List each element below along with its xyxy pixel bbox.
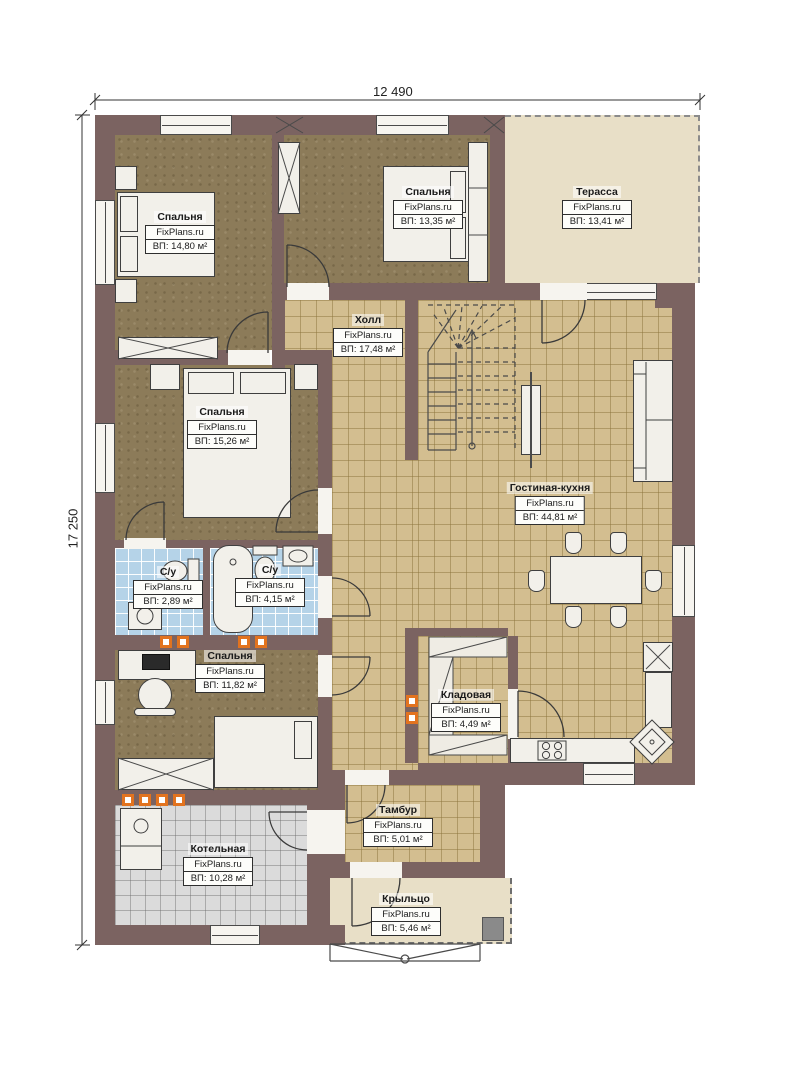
dimension-height: 17 250 xyxy=(65,506,80,552)
room-info-box: FixPlans.ru ВП: 11,82 м² xyxy=(195,664,265,693)
room-info-box: FixPlans.ru ВП: 13,41 м² xyxy=(562,200,632,229)
room-name: Терасса xyxy=(573,186,621,198)
wall-storage-top xyxy=(418,628,508,636)
room-info-box: FixPlans.ru ВП: 14,80 м² xyxy=(145,225,215,254)
window-bedroom3-left xyxy=(95,423,115,493)
wall-bath-divider xyxy=(203,548,210,635)
room-info-box: FixPlans.ru ВП: 4,15 м² xyxy=(235,578,305,607)
room-name: Спальня xyxy=(154,211,205,223)
window-living-right xyxy=(672,545,695,617)
room-label-hall: Холл FixPlans.ru ВП: 17,48 м² xyxy=(333,314,403,357)
watermark: FixPlans.ru xyxy=(184,858,252,871)
room-area: ВП: 11,82 м² xyxy=(196,678,264,692)
window-bedroom4-left xyxy=(95,680,115,725)
room-area: ВП: 15,26 м² xyxy=(188,434,256,448)
dining-chair xyxy=(565,532,582,554)
window-bedroom1-left xyxy=(95,200,115,285)
kitchen-counter-bottom xyxy=(510,738,635,763)
window-bedroom2-top xyxy=(376,115,449,135)
dining-chair xyxy=(610,606,627,628)
window-boiler-bottom xyxy=(210,925,260,945)
wall-terrace-left xyxy=(490,115,505,283)
room-info-box: FixPlans.ru ВП: 4,49 м² xyxy=(431,703,501,732)
floor-plan-page: { "meta": { "watermark": "FixPlans.ru" }… xyxy=(0,0,792,1080)
room-area: ВП: 44,81 м² xyxy=(516,510,584,524)
window-bedroom1-top xyxy=(160,115,232,135)
boiler-unit xyxy=(120,808,162,870)
dining-table xyxy=(550,556,642,604)
window-living-terrace xyxy=(585,283,657,300)
room-name: Котельная xyxy=(188,843,249,855)
room-info-box: FixPlans.ru ВП: 13,35 м² xyxy=(393,200,463,229)
vent-marker xyxy=(406,695,418,707)
dining-chair xyxy=(645,570,662,592)
room-label-bedroom4: Спальня FixPlans.ru ВП: 11,82 м² xyxy=(195,650,265,693)
door-opening-boiler xyxy=(307,810,345,854)
door-opening-bedroom3 xyxy=(318,488,332,534)
room-label-terrace: Терасса FixPlans.ru ВП: 13,41 м² xyxy=(562,186,632,229)
watermark: FixPlans.ru xyxy=(196,665,264,678)
room-area: ВП: 13,35 м² xyxy=(394,214,462,228)
wall-bed1-bottom-2 xyxy=(272,350,332,365)
room-name: Гостиная-кухня xyxy=(507,482,593,494)
wall-living-right-corner xyxy=(655,283,695,308)
door-opening-bedroom4 xyxy=(318,655,332,697)
room-label-bedroom3: Спальня FixPlans.ru ВП: 15,26 м² xyxy=(187,406,257,449)
door-opening-storage xyxy=(508,689,518,739)
room-label-bedroom1: Спальня FixPlans.ru ВП: 14,80 м² xyxy=(145,211,215,254)
dining-chair xyxy=(610,532,627,554)
nightstand xyxy=(150,364,180,390)
wall-living-right xyxy=(672,283,695,763)
watermark: FixPlans.ru xyxy=(432,704,500,717)
dimension-width: 12 490 xyxy=(370,84,416,99)
room-label-living: Гостиная-кухня FixPlans.ru ВП: 44,81 м² xyxy=(507,482,593,525)
room-label-porch: Крыльцо FixPlans.ru ВП: 5,46 м² xyxy=(371,893,441,936)
vent-marker xyxy=(122,794,134,806)
room-label-vestibule: Тамбур FixPlans.ru ВП: 5,01 м² xyxy=(363,804,433,847)
watermark: FixPlans.ru xyxy=(188,421,256,434)
room-name: Холл xyxy=(352,314,384,326)
room-info-box: FixPlans.ru ВП: 10,28 м² xyxy=(183,857,253,886)
pillow xyxy=(294,721,312,759)
room-name: Тамбур xyxy=(376,804,420,816)
vent-marker xyxy=(177,636,189,648)
room-info-box: FixPlans.ru ВП: 5,01 м² xyxy=(363,818,433,847)
kitchen-counter-right xyxy=(645,672,672,728)
room-label-bath2: С/у FixPlans.ru ВП: 4,15 м² xyxy=(235,564,305,607)
pillow xyxy=(188,372,234,394)
sofa xyxy=(633,360,673,482)
shelving-bedroom2 xyxy=(468,142,488,282)
room-info-box: FixPlans.ru ВП: 5,46 м² xyxy=(371,907,441,936)
room-label-boiler: Котельная FixPlans.ru ВП: 10,28 м² xyxy=(183,843,253,886)
door-opening-bedroom1 xyxy=(228,350,270,365)
door-opening-bath2 xyxy=(318,576,332,618)
porch-steps xyxy=(330,944,480,963)
wardrobe-bedroom1 xyxy=(118,337,218,359)
printer xyxy=(142,654,170,670)
room-info-box: FixPlans.ru ВП: 44,81 м² xyxy=(515,496,585,525)
room-area: ВП: 5,46 м² xyxy=(372,921,440,935)
room-info-box: FixPlans.ru ВП: 15,26 м² xyxy=(187,420,257,449)
wall-vestibule-right xyxy=(480,785,505,862)
room-label-bath1: С/у FixPlans.ru ВП: 2,89 м² xyxy=(133,566,203,609)
stair-pilaster xyxy=(521,385,541,455)
room-label-bedroom2: Спальня FixPlans.ru ВП: 13,35 м² xyxy=(393,186,463,229)
room-name: Спальня xyxy=(196,406,247,418)
watermark: FixPlans.ru xyxy=(563,201,631,214)
wall-bath-bottom xyxy=(115,635,318,650)
room-area: ВП: 4,49 м² xyxy=(432,717,500,731)
pillow xyxy=(120,196,138,232)
room-name: С/у xyxy=(259,564,281,576)
porch-shaft xyxy=(482,917,504,941)
watermark: FixPlans.ru xyxy=(236,579,304,592)
room-info-box: FixPlans.ru ВП: 2,89 м² xyxy=(133,580,203,609)
watermark: FixPlans.ru xyxy=(134,581,202,594)
room-name: Спальня xyxy=(204,650,255,662)
pillow xyxy=(120,236,138,272)
vent-marker xyxy=(238,636,250,648)
door-opening-bath1 xyxy=(124,538,166,549)
room-name: С/у xyxy=(157,566,179,578)
room-area: ВП: 2,89 м² xyxy=(134,594,202,608)
pillow xyxy=(240,372,286,394)
nightstand xyxy=(294,364,318,390)
vent-marker xyxy=(156,794,168,806)
dining-chair xyxy=(528,570,545,592)
watermark: FixPlans.ru xyxy=(146,226,214,239)
room-name: Спальня xyxy=(402,186,453,198)
window-living-bottom xyxy=(583,763,635,785)
door-opening-terrace xyxy=(540,283,587,300)
room-name: Крыльцо xyxy=(379,893,433,905)
vent-marker xyxy=(406,712,418,724)
room-area: ВП: 14,80 м² xyxy=(146,239,214,253)
watermark: FixPlans.ru xyxy=(334,329,402,342)
room-label-storage: Кладовая FixPlans.ru ВП: 4,49 м² xyxy=(431,689,501,732)
room-info-box: FixPlans.ru ВП: 17,48 м² xyxy=(333,328,403,357)
watermark: FixPlans.ru xyxy=(364,819,432,832)
room-area: ВП: 13,41 м² xyxy=(563,214,631,228)
wardrobe-bedroom2 xyxy=(278,142,300,214)
kitchen-cabinet xyxy=(643,642,673,672)
room-area: ВП: 4,15 м² xyxy=(236,592,304,606)
vent-marker xyxy=(160,636,172,648)
door-opening-vestibule-hall xyxy=(345,770,389,785)
desk-chair xyxy=(138,678,172,712)
wardrobe-bedroom4 xyxy=(118,758,214,790)
room-area: ВП: 5,01 м² xyxy=(364,832,432,846)
watermark: FixPlans.ru xyxy=(372,908,440,921)
vent-marker xyxy=(255,636,267,648)
door-opening-bedroom2 xyxy=(287,283,329,300)
nightstand xyxy=(115,166,137,190)
desk-chair-back xyxy=(134,708,176,716)
nightstand xyxy=(115,279,137,303)
wall-hall-living xyxy=(405,300,418,460)
room-area: ВП: 17,48 м² xyxy=(334,342,402,356)
door-opening-entrance xyxy=(350,862,402,878)
vent-marker xyxy=(139,794,151,806)
dining-chair xyxy=(565,606,582,628)
room-name: Кладовая xyxy=(438,689,494,701)
watermark: FixPlans.ru xyxy=(394,201,462,214)
room-area: ВП: 10,28 м² xyxy=(184,871,252,885)
vent-marker xyxy=(173,794,185,806)
watermark: FixPlans.ru xyxy=(516,497,584,510)
